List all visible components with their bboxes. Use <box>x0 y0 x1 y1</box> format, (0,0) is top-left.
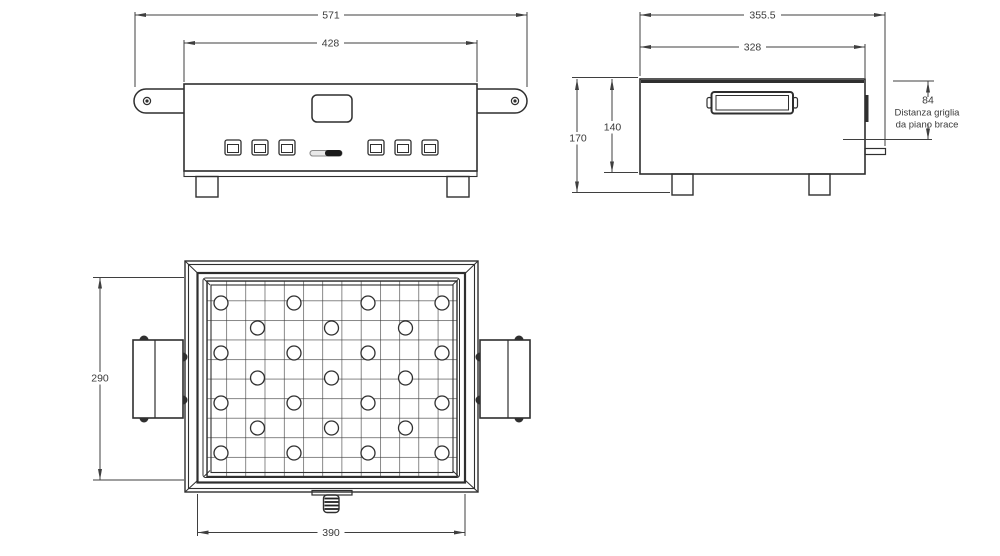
dim-overall-height: 170 <box>566 78 671 193</box>
dim-label-428: 428 <box>322 38 340 50</box>
dim-label-328: 328 <box>744 42 762 54</box>
button <box>252 140 268 155</box>
side-view: 355.5 328 170 140 <box>566 9 961 195</box>
dim-label-140: 140 <box>604 122 622 134</box>
side-body <box>640 79 865 174</box>
dim-grill-gap: 84 Distanza griglia da piano brace <box>893 81 960 140</box>
dim-label-571: 571 <box>322 10 340 22</box>
dim-label-84: 84 <box>922 95 934 107</box>
button <box>279 140 295 155</box>
drawing-canvas: 571 428 <box>0 0 1000 556</box>
dim-body-width: 428 <box>184 37 477 82</box>
side-tab <box>865 149 886 155</box>
front-handle-right <box>477 89 527 113</box>
front-base-band <box>184 171 477 177</box>
top-view: 290 390 <box>87 261 531 539</box>
dim-label-170: 170 <box>569 133 587 145</box>
button <box>368 140 384 155</box>
side-bracket <box>865 95 869 122</box>
button <box>422 140 438 155</box>
dim-grill-depth: 290 <box>87 278 185 481</box>
display-window <box>312 95 352 122</box>
plan-handle-left <box>133 336 188 423</box>
button <box>395 140 411 155</box>
bottom-knob <box>312 491 352 513</box>
front-handle-left <box>134 89 184 113</box>
front-foot-left <box>196 177 218 198</box>
side-foot-right <box>809 174 830 195</box>
dim-grill-width: 390 <box>198 494 466 539</box>
dim-label-355-5: 355.5 <box>749 10 775 22</box>
note-da-piano-brace: da piano brace <box>896 120 959 131</box>
button <box>225 140 241 155</box>
front-body <box>184 84 477 171</box>
dim-label-290: 290 <box>91 373 109 385</box>
side-foot-left <box>672 174 693 195</box>
technical-drawing: 571 428 <box>0 0 1000 556</box>
dim-overall-depth: 355.5 <box>640 9 885 146</box>
front-view: 571 428 <box>134 9 527 197</box>
plan-handle-right <box>476 336 531 423</box>
dim-body-depth: 328 <box>640 41 865 78</box>
dim-body-height: 140 <box>601 79 639 173</box>
front-foot-right <box>447 177 469 198</box>
side-handle <box>707 92 798 114</box>
slider-control <box>310 150 342 156</box>
note-distanza-griglia: Distanza griglia <box>895 108 961 119</box>
dim-label-390: 390 <box>322 527 340 539</box>
